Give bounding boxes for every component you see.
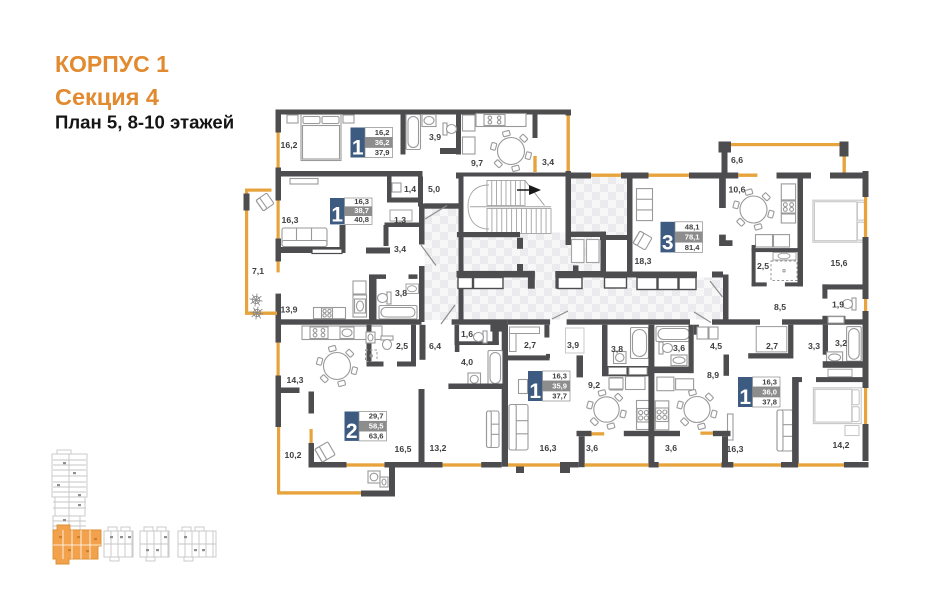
svg-text:78,1: 78,1 [685, 233, 701, 242]
svg-text:10,2: 10,2 [285, 450, 302, 460]
svg-text:3,2: 3,2 [835, 338, 847, 348]
svg-text:37,7: 37,7 [552, 391, 567, 400]
svg-text:1: 1 [529, 380, 541, 403]
svg-text:1,4: 1,4 [404, 184, 416, 194]
svg-text:3,6: 3,6 [665, 443, 677, 453]
svg-text:4,5: 4,5 [710, 341, 722, 351]
svg-text:2,7: 2,7 [524, 340, 536, 350]
svg-text:1: 1 [352, 137, 364, 160]
svg-text:3,6: 3,6 [586, 443, 598, 453]
svg-text:1,9: 1,9 [832, 300, 844, 310]
svg-text:48,1: 48,1 [685, 222, 701, 231]
svg-text:14,3: 14,3 [287, 375, 304, 385]
svg-text:9,7: 9,7 [471, 158, 483, 168]
svg-text:1: 1 [331, 203, 343, 226]
svg-text:40,8: 40,8 [354, 215, 369, 224]
svg-text:15,6: 15,6 [831, 258, 848, 268]
svg-text:3,8: 3,8 [611, 344, 623, 354]
svg-text:8,5: 8,5 [774, 302, 786, 312]
svg-text:29,7: 29,7 [369, 412, 384, 421]
svg-text:16,2: 16,2 [281, 140, 298, 150]
svg-text:16,5: 16,5 [395, 444, 412, 454]
svg-text:4,0: 4,0 [461, 357, 473, 367]
svg-text:3,8: 3,8 [395, 288, 407, 298]
svg-text:8,9: 8,9 [707, 370, 719, 380]
svg-text:37,9: 37,9 [375, 148, 390, 157]
svg-text:3: 3 [662, 231, 674, 254]
svg-text:3,9: 3,9 [429, 132, 441, 142]
svg-text:14,2: 14,2 [833, 440, 850, 450]
svg-text:1,6: 1,6 [461, 329, 473, 339]
svg-text:2: 2 [346, 420, 358, 443]
svg-text:37,8: 37,8 [762, 397, 777, 406]
svg-text:3,3: 3,3 [808, 341, 820, 351]
svg-text:3,6: 3,6 [673, 343, 685, 353]
svg-text:КОРПУС 1: КОРПУС 1 [55, 51, 169, 77]
svg-text:16,3: 16,3 [552, 371, 567, 380]
svg-text:2,5: 2,5 [757, 261, 769, 271]
svg-text:3,4: 3,4 [542, 157, 554, 167]
svg-text:36,2: 36,2 [375, 138, 390, 147]
svg-text:13,2: 13,2 [430, 443, 447, 453]
svg-text:35,9: 35,9 [552, 381, 567, 390]
svg-text:7,1: 7,1 [252, 266, 264, 276]
svg-text:36,0: 36,0 [762, 387, 777, 396]
svg-text:9,2: 9,2 [588, 380, 600, 390]
svg-text:81,4: 81,4 [685, 243, 701, 252]
svg-text:5,0: 5,0 [428, 184, 440, 194]
svg-text:3,9: 3,9 [567, 340, 579, 350]
svg-text:38,7: 38,7 [354, 206, 369, 215]
svg-text:10,6: 10,6 [729, 185, 746, 195]
svg-text:16,3: 16,3 [354, 197, 369, 206]
svg-text:16,2: 16,2 [375, 128, 390, 137]
svg-text:13,9: 13,9 [281, 305, 298, 315]
svg-text:18,3: 18,3 [635, 256, 652, 266]
svg-text:16,3: 16,3 [282, 215, 299, 225]
svg-text:63,6: 63,6 [369, 431, 384, 440]
svg-text:16,3: 16,3 [727, 444, 744, 454]
svg-text:2,7: 2,7 [766, 341, 778, 351]
svg-text:1: 1 [739, 386, 751, 409]
svg-text:Секция 4: Секция 4 [55, 84, 159, 110]
svg-text:16,3: 16,3 [762, 377, 777, 386]
svg-text:2,5: 2,5 [396, 341, 408, 351]
svg-text:План 5, 8-10 этажей: План 5, 8-10 этажей [55, 112, 234, 133]
svg-text:1,3: 1,3 [394, 215, 406, 225]
svg-text:16,3: 16,3 [540, 443, 557, 453]
svg-text:6,6: 6,6 [731, 155, 743, 165]
svg-text:6,4: 6,4 [429, 341, 441, 351]
svg-text:58,5: 58,5 [369, 422, 385, 431]
svg-text:3,4: 3,4 [394, 244, 406, 254]
